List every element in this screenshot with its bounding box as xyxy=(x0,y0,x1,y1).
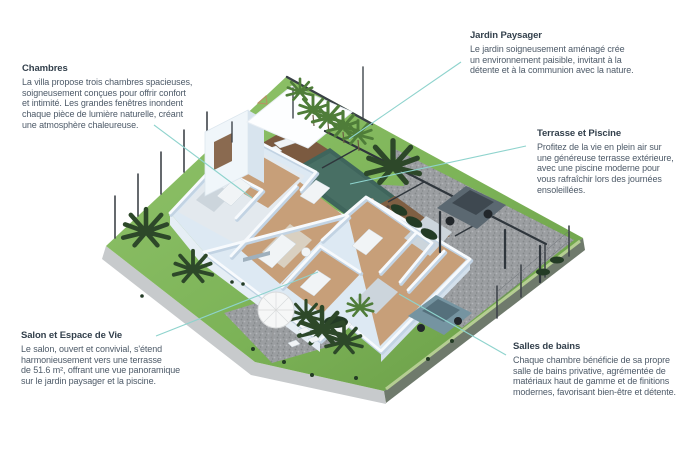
callout-chambres: Chambres La villa propose trois chambres… xyxy=(22,63,214,131)
callout-title: Terrasse et Piscine xyxy=(537,128,700,139)
callout-title: Chambres xyxy=(22,63,214,74)
leader-line-jardin xyxy=(349,62,461,139)
floor-plan-infographic: Chambres La villa propose trois chambres… xyxy=(0,0,700,455)
callout-salles-de-bains: Salles de bains Chaque chambre bénéficie… xyxy=(513,341,699,398)
callout-body: La villa propose trois chambres spacieus… xyxy=(22,77,214,131)
callout-body: Profitez de la vie en plein air sur une … xyxy=(537,142,700,196)
callout-body: Le salon, ouvert et convivial, s'étend h… xyxy=(21,344,213,387)
callout-jardin-paysager: Jardin Paysager Le jardin soigneusement … xyxy=(470,30,658,76)
callout-title: Jardin Paysager xyxy=(470,30,658,41)
callout-title: Salon et Espace de Vie xyxy=(21,330,213,341)
callout-terrasse-et-piscine: Terrasse et Piscine Profitez de la vie e… xyxy=(537,128,700,196)
dining-table xyxy=(302,248,311,257)
callout-body: Le jardin soigneusement aménagé crée un … xyxy=(470,44,658,76)
callout-salon-et-espace-de-vie: Salon et Espace de Vie Le salon, ouvert … xyxy=(21,330,213,387)
callout-title: Salles de bains xyxy=(513,341,699,352)
callout-body: Chaque chambre bénéficie de sa propre sa… xyxy=(513,355,699,398)
